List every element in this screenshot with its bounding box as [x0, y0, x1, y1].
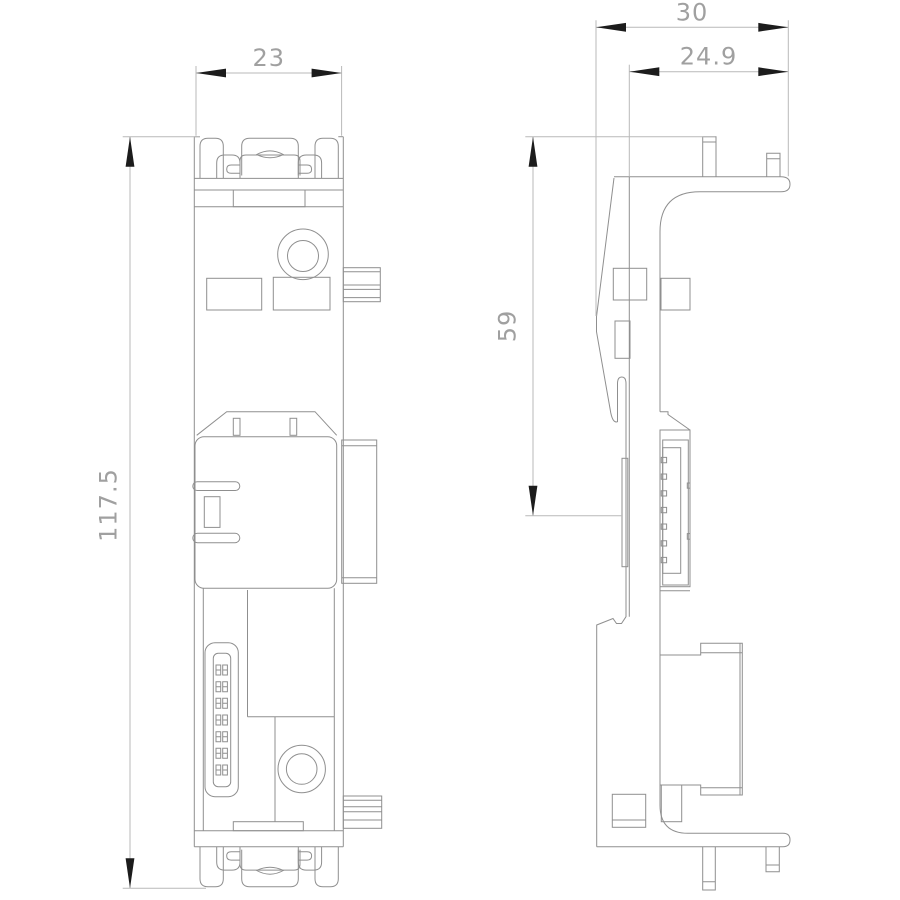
front-terminal-top [343, 268, 380, 302]
front-lower-section [203, 588, 334, 830]
side-header-pins [661, 457, 666, 562]
front-terminal-bottom [343, 796, 381, 828]
dim-label-front-height: 117.5 [95, 468, 123, 542]
dim-label-front-width: 23 [253, 44, 286, 72]
dimension-labels: 23 30 24.9 117.5 59 [95, 0, 738, 542]
dim-label-side-width: 30 [676, 0, 709, 27]
side-bottom-pin-2 [766, 847, 779, 872]
technical-drawing-canvas: 23 30 24.9 117.5 59 [0, 0, 900, 900]
side-top-pin-2 [767, 153, 780, 176]
side-body-profile [597, 177, 691, 847]
side-view [597, 137, 791, 890]
technical-drawing: 23 30 24.9 117.5 59 [0, 0, 900, 900]
front-connector-pin-cells [216, 665, 227, 775]
dim-label-side-clip-height: 59 [494, 310, 522, 343]
front-socket-block [193, 412, 377, 589]
side-top-flange [614, 137, 790, 412]
front-body [194, 137, 343, 847]
side-pin-header [660, 412, 690, 591]
side-bottom-pin-1 [703, 847, 716, 890]
front-bottom-din-clamp [200, 847, 338, 887]
front-multipin-connector [205, 643, 238, 797]
front-label-windows [207, 277, 330, 310]
front-screw-hole-top [278, 229, 329, 280]
dim-label-side-width-inner: 24.9 [680, 43, 737, 71]
side-top-pin-1 [703, 137, 716, 177]
front-screw-hole-bottom [278, 745, 325, 792]
front-view [193, 137, 382, 887]
dimension-lines: 23 30 24.9 117.5 59 [95, 0, 789, 888]
side-bottom-flange [597, 587, 790, 890]
front-top-din-clamp [200, 138, 338, 178]
side-relay-block [612, 643, 742, 827]
